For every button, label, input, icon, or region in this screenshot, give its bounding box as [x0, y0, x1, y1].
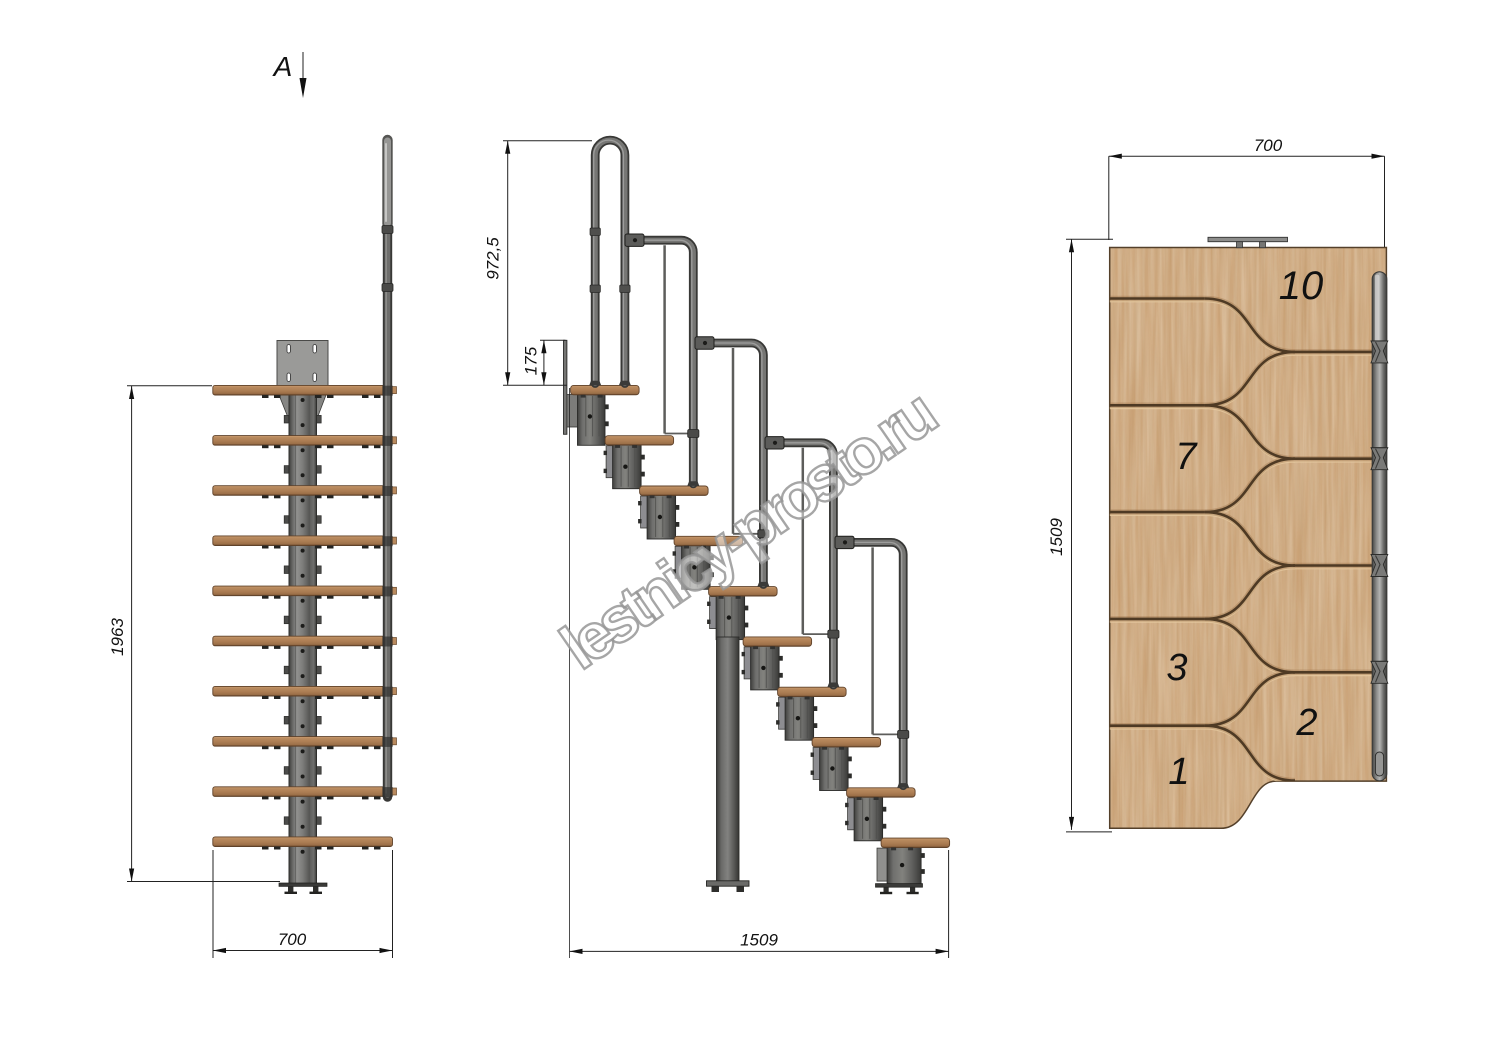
svg-text:1509: 1509 [1047, 518, 1066, 556]
svg-text:10: 10 [1279, 264, 1324, 308]
svg-text:1963: 1963 [108, 618, 127, 656]
svg-text:972,5: 972,5 [484, 237, 503, 280]
svg-text:700: 700 [278, 930, 307, 949]
svg-text:175: 175 [522, 346, 541, 375]
svg-text:2: 2 [1295, 702, 1317, 744]
svg-text:7: 7 [1175, 436, 1198, 478]
svg-text:700: 700 [1254, 136, 1283, 155]
svg-text:1509: 1509 [740, 931, 778, 950]
svg-text:1: 1 [1168, 751, 1189, 793]
svg-text:3: 3 [1166, 647, 1187, 689]
svg-text:A: A [272, 51, 293, 82]
